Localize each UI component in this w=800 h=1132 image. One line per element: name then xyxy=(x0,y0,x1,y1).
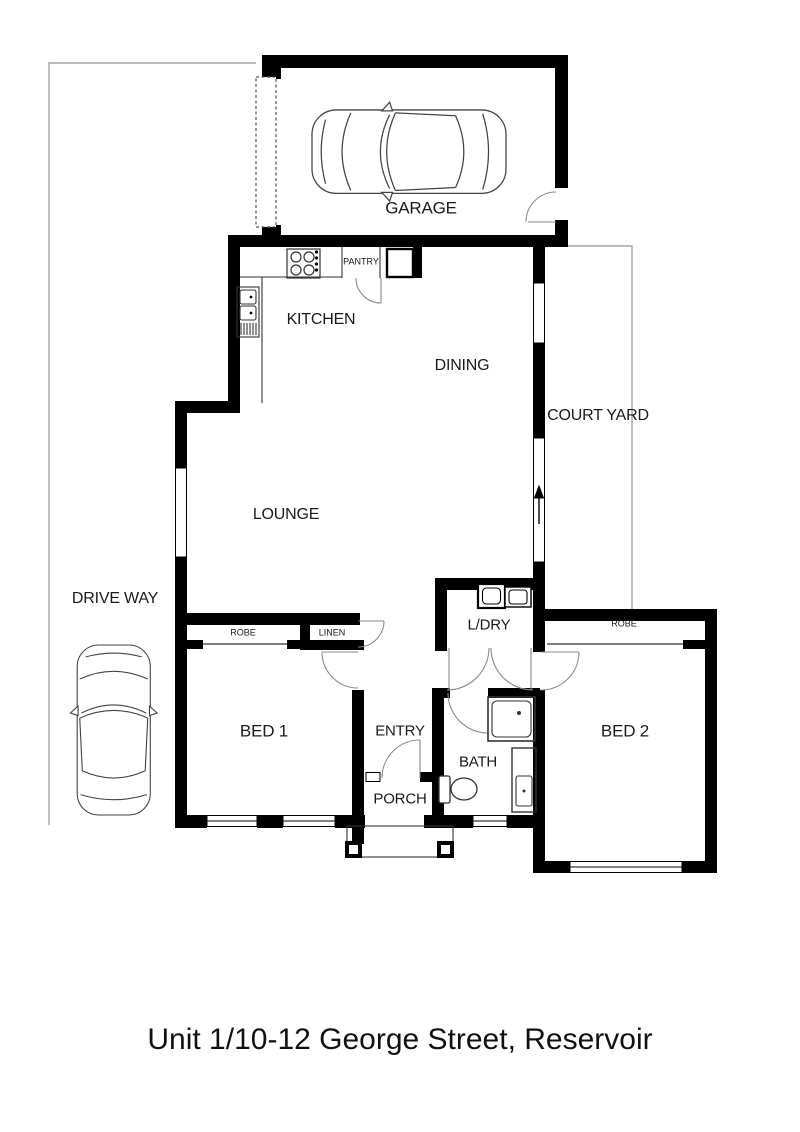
porch-posts xyxy=(347,843,452,856)
lounge-window xyxy=(176,468,187,557)
bath-door xyxy=(448,693,488,733)
driveway-label: DRIVE WAY xyxy=(72,591,158,607)
washing-machine-icon xyxy=(505,587,531,607)
car-top-view-icon xyxy=(70,645,157,815)
page-title: Unit 1/10-12 George Street, Reservoir xyxy=(147,1023,652,1057)
laundry-label: L/DRY xyxy=(468,618,511,633)
windows xyxy=(176,283,683,873)
floor-plan-drawing xyxy=(0,0,800,1132)
entry-label: ENTRY xyxy=(375,724,425,739)
toilet-icon xyxy=(439,776,477,803)
shower-icon xyxy=(488,697,535,741)
garage-label: GARAGE xyxy=(385,200,457,217)
laundry-trough-icon xyxy=(478,584,505,608)
bed2-label: BED 2 xyxy=(601,723,649,740)
vanity-icon xyxy=(512,748,536,812)
floor-plan: GARAGE KITCHEN PANTRY DINING COURT YARD … xyxy=(0,0,800,1132)
bed2-window xyxy=(570,862,682,873)
kitchen-cabinet-icon xyxy=(387,249,413,277)
bed1-robe-label: ROBE xyxy=(230,629,256,638)
courtyard-label: COURT YARD xyxy=(547,408,649,424)
lounge-label: LOUNGE xyxy=(253,507,319,523)
bath-label: BATH xyxy=(459,755,497,770)
bed2-door xyxy=(541,652,579,690)
bed1-label: BED 1 xyxy=(240,723,288,740)
bed1-door xyxy=(322,652,358,688)
garage-roller-door xyxy=(256,77,276,227)
dining-label: DINING xyxy=(435,358,490,374)
kitchen-label: KITCHEN xyxy=(287,312,356,328)
bath-window xyxy=(473,816,507,827)
laundry-double-doors xyxy=(447,648,533,690)
courtyard-boundary-line xyxy=(568,246,632,611)
pantry-label: PANTRY xyxy=(343,258,379,267)
sink-icon xyxy=(237,287,259,337)
dining-window xyxy=(534,283,545,343)
garage-side-door xyxy=(526,192,556,222)
linen-label: LINEN xyxy=(319,629,346,638)
entry-door xyxy=(382,740,420,778)
porch-label: PORCH xyxy=(373,792,426,807)
entry-sidelight-window xyxy=(366,773,380,782)
car-top-view-icon xyxy=(312,102,506,201)
pantry-door xyxy=(356,278,381,303)
stove-icon xyxy=(287,249,320,278)
bed2-robe-label: ROBE xyxy=(611,620,637,629)
